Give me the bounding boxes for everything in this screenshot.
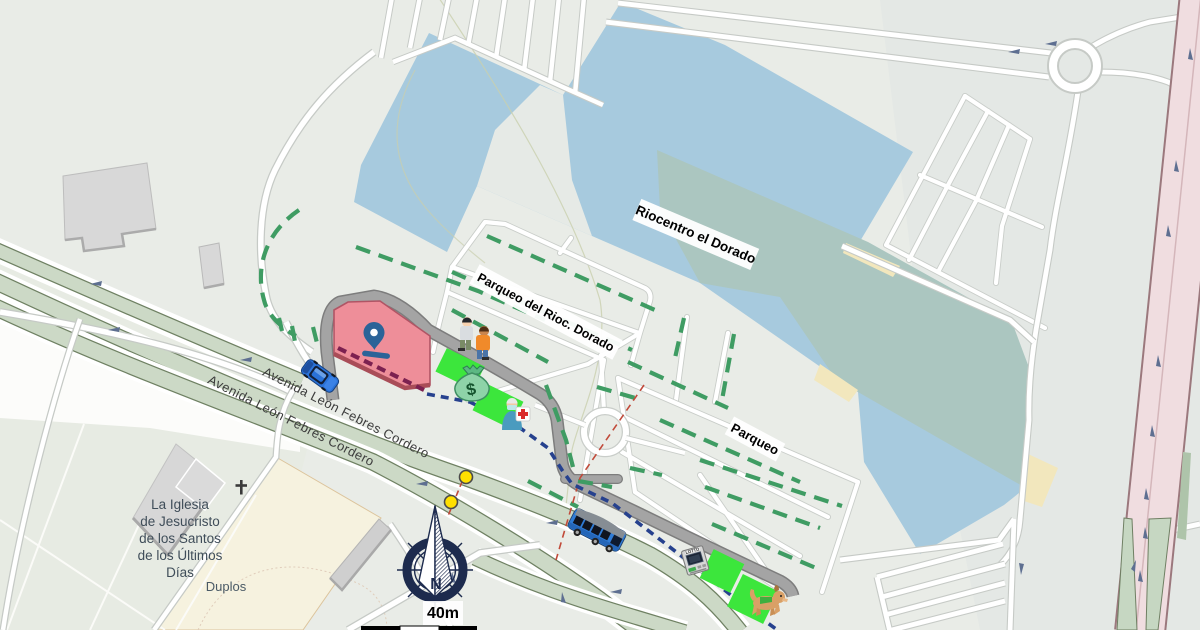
svg-text:Días: Días (166, 565, 194, 580)
svg-text:de los Santos: de los Santos (139, 531, 221, 546)
svg-text:La Iglesia: La Iglesia (151, 497, 209, 512)
svg-text:de Jesucristo: de Jesucristo (140, 514, 220, 529)
svg-text:N: N (430, 576, 442, 593)
svg-text:40m: 40m (427, 605, 459, 622)
svg-text:Duplos: Duplos (206, 579, 247, 594)
svg-text:de los Últimos: de los Últimos (138, 548, 223, 563)
